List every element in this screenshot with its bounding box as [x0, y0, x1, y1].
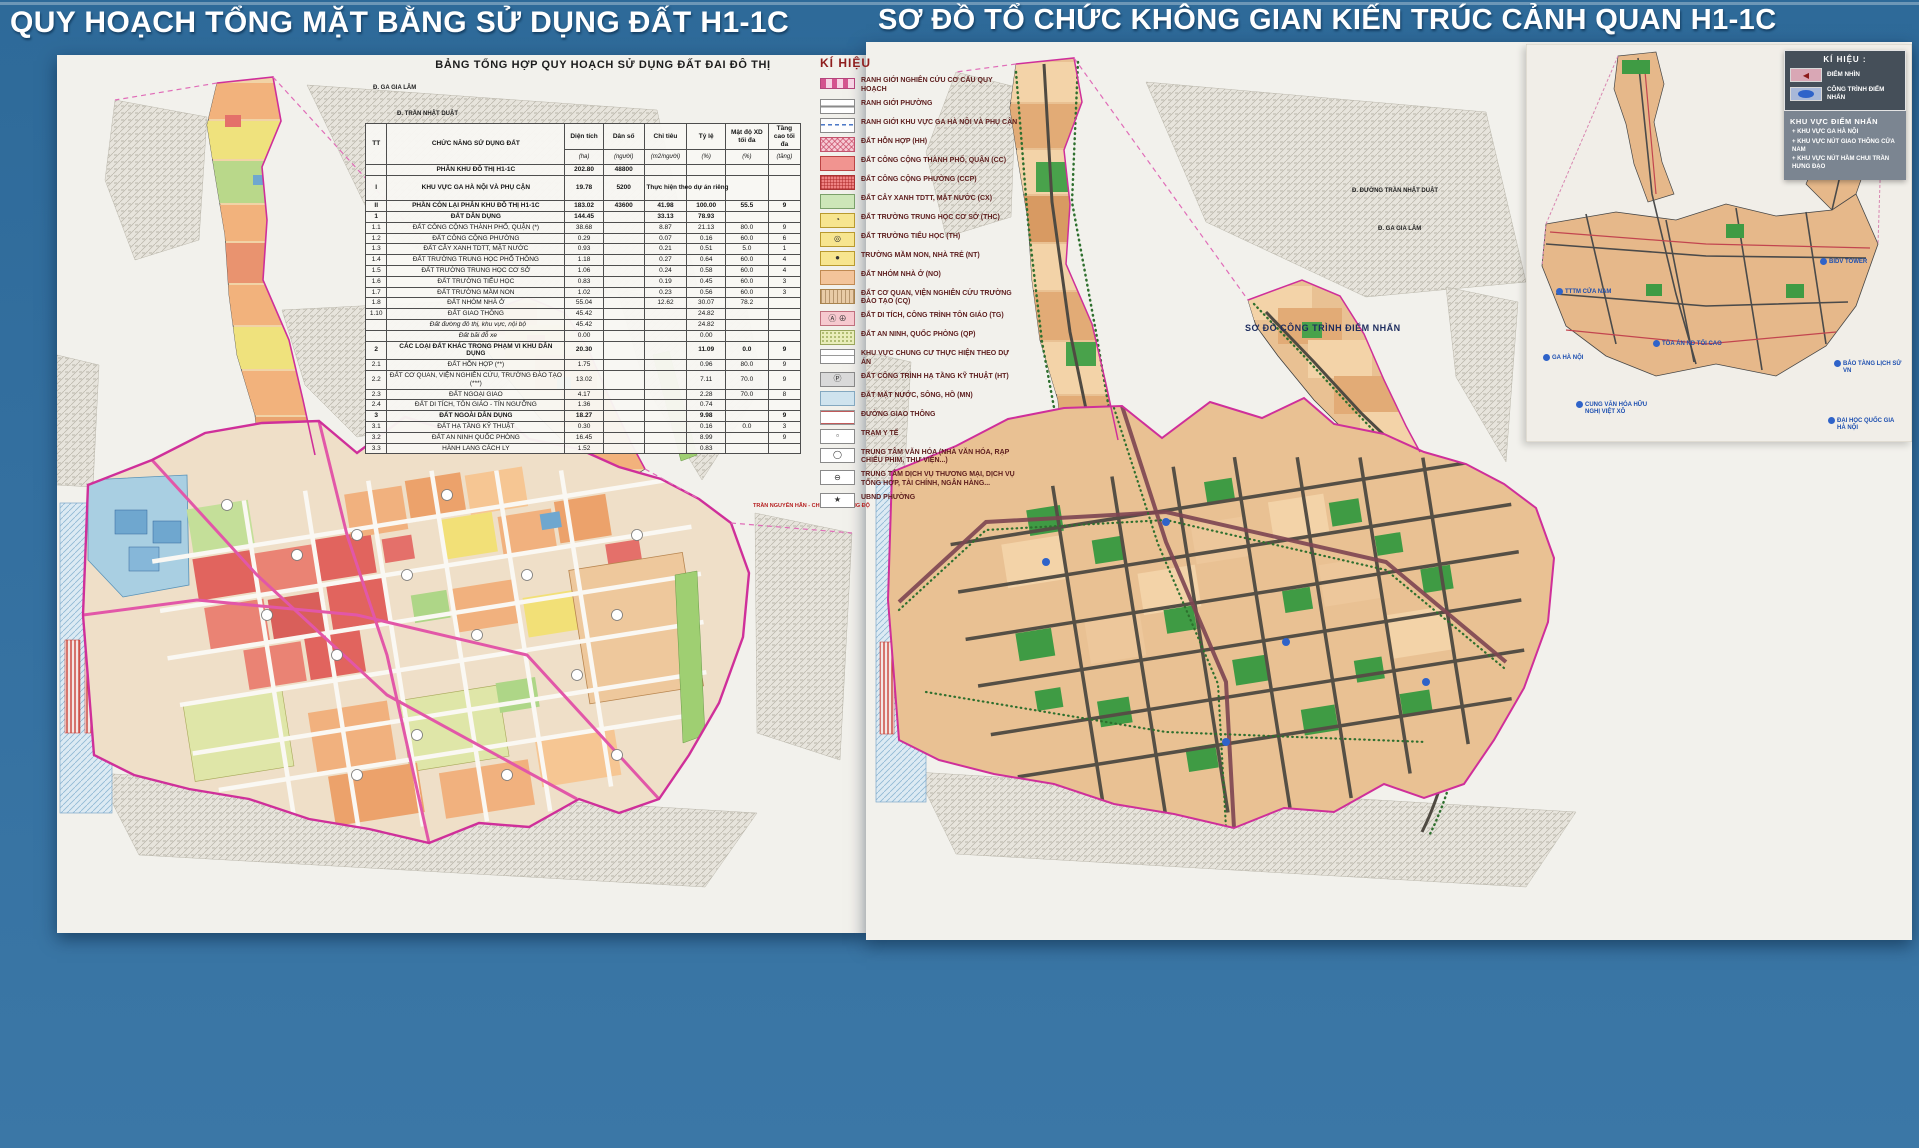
legend-label: ĐẤT MẶT NƯỚC, SÔNG, HỒ (MN)	[861, 391, 973, 401]
legend-swatch: ◯	[820, 448, 855, 463]
legend-item: ● TRƯỜNG MẦM NON, NHÀ TRẺ (NT)	[820, 251, 1020, 266]
cell-population: 5200	[603, 176, 644, 201]
cell-name: ĐẤT CÂY XANH TDTT, MẶT NƯỚC	[387, 244, 565, 255]
cell-population	[603, 255, 644, 266]
cell-area: 13.02	[565, 370, 604, 389]
cell-tt: 1.5	[366, 265, 387, 276]
inset-caption: SƠ ĐỒ CÔNG TRÌNH ĐIỂM NHẤN	[1245, 323, 1401, 333]
legend-label: ĐẤT CÔNG CỘNG THÀNH PHỐ, QUẬN (CC)	[861, 156, 1006, 166]
cell-ratio: 78.93	[687, 211, 726, 222]
legend-label: TRẠM Y TẾ	[861, 429, 898, 439]
col-unit: (ha)	[565, 150, 604, 165]
table-title: BẢNG TỔNG HỢP QUY HOẠCH SỬ DỤNG ĐẤT ĐAI …	[395, 59, 811, 71]
cell-population	[603, 244, 644, 255]
cell-floors	[768, 319, 800, 330]
cell-ratio: 21.13	[687, 222, 726, 233]
cell-floors	[768, 211, 800, 222]
cell-area: 1.36	[565, 400, 604, 411]
legend-item: ĐẤT CƠ QUAN, VIỆN NGHIÊN CỨU TRƯỜNG ĐÀO …	[820, 289, 1020, 308]
cell-quota	[644, 370, 687, 389]
cell-population	[603, 360, 644, 371]
cell-floors: 9	[768, 222, 800, 233]
table-row: 3.2 ĐẤT AN NINH QUỐC PHÒNG 16.45 8.99 9	[366, 432, 801, 443]
legend-label: ĐIỂM NHÌN	[1827, 71, 1860, 79]
legend-swatch	[820, 330, 855, 345]
cell-quota: 12.62	[644, 298, 687, 309]
legend-swatch	[820, 78, 855, 89]
cell-area: 20.30	[565, 341, 604, 360]
cell-name: ĐẤT NHÓM NHÀ Ở	[387, 298, 565, 309]
cell-density: 80.0	[725, 360, 768, 371]
legend-label: ĐẤT CÔNG TRÌNH HẠ TẦNG KỸ THUẬT (HT)	[861, 372, 1009, 382]
cell-ratio: 24.82	[687, 309, 726, 320]
legend-item: ĐẤT CÔNG CỘNG THÀNH PHỐ, QUẬN (CC)	[820, 156, 1020, 171]
cell-name: Đất đường đô thị, khu vực, nội bộ	[387, 319, 565, 330]
cell-area: 144.45	[565, 211, 604, 222]
cell-tt: 1.7	[366, 287, 387, 298]
cell-area: 0.93	[565, 244, 604, 255]
legend-item: ĐẤT MẶT NƯỚC, SÔNG, HỒ (MN)	[820, 391, 1020, 406]
cell-name: ĐẤT CÔNG CỘNG PHƯỜNG	[387, 233, 565, 244]
cell-name: ĐẤT AN NINH QUỐC PHÒNG	[387, 432, 565, 443]
legend-item: ▫ TRẠM Y TẾ	[820, 429, 1020, 444]
table-row: II PHẦN CÒN LẠI PHÂN KHU ĐÔ THỊ H1-1C 18…	[366, 201, 801, 212]
legend-label: ĐẤT TRƯỜNG TIỂU HỌC (TH)	[861, 232, 960, 242]
legend-label: TRUNG TÂM VĂN HÓA (NHÀ VĂN HÓA, RẠP CHIẾ…	[861, 448, 1020, 467]
table-row: 2.4 ĐẤT DI TÍCH, TÔN GIÁO - TÍN NGƯỠNG 1…	[366, 400, 801, 411]
right-legend-panel: KÍ HIỆU : ◀ ĐIỂM NHÌN CÔNG TRÌNH ĐIỂM NH…	[1784, 50, 1906, 180]
cell-quota	[644, 421, 687, 432]
cell-area: 45.42	[565, 309, 604, 320]
legend-label: ĐẤT NHÓM NHÀ Ở (NO)	[861, 270, 941, 280]
cell-area: 1.06	[565, 265, 604, 276]
cell-floors: 4	[768, 265, 800, 276]
cell-tt: 1.1	[366, 222, 387, 233]
cell-quota	[644, 411, 687, 422]
cell-density: 60.0	[725, 255, 768, 266]
cell-tt: 1.2	[366, 233, 387, 244]
table-row: 1 ĐẤT DÂN DỤNG 144.45 33.13 78.93	[366, 211, 801, 222]
cell-ratio: 24.82	[687, 319, 726, 330]
cell-tt: 3.2	[366, 432, 387, 443]
cell-population	[603, 222, 644, 233]
legend-swatch	[820, 270, 855, 285]
legend-label: ĐƯỜNG GIAO THÔNG	[861, 410, 935, 420]
cell-name: ĐẤT NGOẠI GIAO	[387, 389, 565, 400]
cell-name: ĐẤT HỖN HỢP (**)	[387, 360, 565, 371]
cell-name: ĐẤT TRƯỜNG TRUNG HỌC PHỔ THÔNG	[387, 255, 565, 266]
cell-population: 48800	[603, 165, 644, 176]
cell-quota	[644, 309, 687, 320]
legend-label: ĐẤT AN NINH, QUỐC PHÒNG (QP)	[861, 330, 975, 340]
legend-title: KÍ HIỆU :	[1790, 55, 1900, 64]
legend-item: ĐẤT CÂY XANH TDTT, MẶT NƯỚC (CX)	[820, 194, 1020, 209]
cell-density	[725, 443, 768, 454]
col-unit: (%)	[725, 150, 768, 165]
cell-floors	[768, 165, 800, 176]
cell-quota	[644, 165, 687, 176]
cell-name: Đất bãi đỗ xe	[387, 330, 565, 341]
table-row: 1.7 ĐẤT TRƯỜNG MẦM NON 1.02 0.23 0.56 60…	[366, 287, 801, 298]
col-unit: (m2/người)	[644, 150, 687, 165]
cell-tt: 2.4	[366, 400, 387, 411]
cell-floors: 3	[768, 421, 800, 432]
cell-ratio: 0.16	[687, 233, 726, 244]
table-row: Đất bãi đỗ xe 0.00 0.00	[366, 330, 801, 341]
cell-quota: 33.13	[644, 211, 687, 222]
cell-area: 1.18	[565, 255, 604, 266]
cell-name: ĐẤT NGOÀI DÂN DỤNG	[387, 411, 565, 422]
cell-population	[603, 330, 644, 341]
cell-floors	[768, 176, 800, 201]
cell-quota	[644, 330, 687, 341]
cell-ratio: 0.83	[687, 443, 726, 454]
cell-ratio: 7.11	[687, 370, 726, 389]
legend-label: TRUNG TÂM DỊCH VỤ THƯƠNG MẠI, DỊCH VỤ TỔ…	[861, 470, 1020, 489]
cell-ratio: 0.74	[687, 400, 726, 411]
cell-area: 38.68	[565, 222, 604, 233]
cell-area: 202.80	[565, 165, 604, 176]
cell-floors: 9	[768, 201, 800, 212]
cell-density: 55.5	[725, 201, 768, 212]
legend-swatch	[820, 118, 855, 133]
legend-label: RANH GIỚI PHƯỜNG	[861, 99, 932, 109]
cell-population	[603, 287, 644, 298]
cell-density: 60.0	[725, 276, 768, 287]
cell-tt: 1.4	[366, 255, 387, 266]
table-row: 2.1 ĐẤT HỖN HỢP (**) 1.75 0.96 80.0 9	[366, 360, 801, 371]
col-header: Chỉ tiêu	[644, 124, 687, 150]
cell-quota: 41.98	[644, 201, 687, 212]
cell-name: ĐẤT TRƯỜNG TRUNG HỌC CƠ SỞ	[387, 265, 565, 276]
cell-name: ĐẤT TRƯỜNG TIỂU HỌC	[387, 276, 565, 287]
legend-swatch: ◀	[1790, 68, 1822, 82]
legend-item: ◯ TRUNG TÂM VĂN HÓA (NHÀ VĂN HÓA, RẠP CH…	[820, 448, 1020, 467]
cell-area: 18.27	[565, 411, 604, 422]
legend-swatch	[820, 99, 855, 114]
legend-swatch: Ⓟ	[820, 372, 855, 387]
legend-swatch	[820, 410, 855, 425]
col-header-name: CHỨC NĂNG SỬ DỤNG ĐẤT	[387, 124, 565, 165]
table-row: PHÂN KHU ĐÔ THỊ H1-1C 202.80 48800	[366, 165, 801, 176]
legend-swatch	[820, 349, 855, 364]
cell-floors: 1	[768, 244, 800, 255]
cell-floors: 3	[768, 287, 800, 298]
landmark-dot-icon	[1828, 417, 1835, 424]
cell-floors: 6	[768, 233, 800, 244]
table-row: 2.3 ĐẤT NGOẠI GIAO 4.17 2.28 70.0 8	[366, 389, 801, 400]
legend-swatch: ●	[820, 251, 855, 266]
legend-item: ⊖ TRUNG TÂM DỊCH VỤ THƯƠNG MẠI, DỊCH VỤ …	[820, 470, 1020, 489]
cell-density: 70.0	[725, 370, 768, 389]
cell-ratio: 11.09	[687, 341, 726, 360]
legend-item: Ⓟ ĐẤT CÔNG TRÌNH HẠ TẦNG KỸ THUẬT (HT)	[820, 372, 1020, 387]
legend-swatch: ◔	[820, 213, 855, 228]
landmark-dot-icon	[1543, 354, 1550, 361]
cell-density: 78.2	[725, 298, 768, 309]
legend-item: CÔNG TRÌNH ĐIỂM NHẤN	[1790, 86, 1900, 101]
cell-name: PHÂN KHU ĐÔ THỊ H1-1C	[387, 165, 565, 176]
legend-swatch	[820, 391, 855, 406]
cell-density	[725, 411, 768, 422]
cell-tt: 2.1	[366, 360, 387, 371]
cell-population	[603, 421, 644, 432]
legend-label: UBND PHƯỜNG	[861, 493, 915, 503]
table-row: 2.2 ĐẤT CƠ QUAN, VIỆN NGHIÊN CỨU, TRƯỜNG…	[366, 370, 801, 389]
cell-tt	[366, 319, 387, 330]
cell-density	[725, 400, 768, 411]
cell-density	[725, 432, 768, 443]
legend-swatch	[1790, 87, 1822, 101]
cell-density	[725, 330, 768, 341]
table-row: 1.4 ĐẤT TRƯỜNG TRUNG HỌC PHỔ THÔNG 1.18 …	[366, 255, 801, 266]
focus-areas-title: KHU VỰC ĐIỂM NHẤN	[1790, 117, 1900, 126]
legend-item: RANH GIỚI NGHIÊN CỨU CƠ CẤU QUY HOẠCH	[820, 76, 1020, 95]
cell-floors	[768, 443, 800, 454]
cell-ratio: 0.16	[687, 421, 726, 432]
cell-density	[725, 176, 768, 201]
cell-tt: 2.3	[366, 389, 387, 400]
legend-label: ĐẤT TRƯỜNG TRUNG HỌC CƠ SỞ (THC)	[861, 213, 1000, 223]
cell-name: ĐẤT CÔNG CỘNG THÀNH PHỐ, QUẬN (*)	[387, 222, 565, 233]
cell-population	[603, 341, 644, 360]
legend-swatch	[820, 194, 855, 209]
cell-name: PHẦN CÒN LẠI PHÂN KHU ĐÔ THỊ H1-1C	[387, 201, 565, 212]
legend-item: ◎ ĐẤT TRƯỜNG TIỂU HỌC (TH)	[820, 232, 1020, 247]
cell-area: 0.29	[565, 233, 604, 244]
col-unit: (%)	[687, 150, 726, 165]
col-header: Tầng cao tối đa	[768, 124, 800, 150]
table-row: 2 CÁC LOẠI ĐẤT KHÁC TRONG PHẠM VI KHU DÂ…	[366, 341, 801, 360]
legend-item: ★ UBND PHƯỜNG	[820, 493, 1020, 508]
cell-population	[603, 265, 644, 276]
cell-quota	[644, 400, 687, 411]
legend-label: ĐẤT CƠ QUAN, VIỆN NGHIÊN CỨU TRƯỜNG ĐÀO …	[861, 289, 1020, 308]
cell-floors: 9	[768, 432, 800, 443]
cell-quota	[644, 360, 687, 371]
cell-population	[603, 211, 644, 222]
col-unit: (người)	[603, 150, 644, 165]
cell-floors	[768, 330, 800, 341]
col-header: Dân số	[603, 124, 644, 150]
cell-tt: 3.3	[366, 443, 387, 454]
legend-swatch: Ⓐ ⊕	[820, 311, 855, 326]
legend-swatch	[820, 156, 855, 171]
symbol-legend-box: KÍ HIỆU : ◀ ĐIỂM NHÌN CÔNG TRÌNH ĐIỂM NH…	[1784, 50, 1906, 111]
legend-item: ĐƯỜNG GIAO THÔNG	[820, 410, 1020, 425]
landmark-label: CUNG VĂN HÓA HỮU NGHỊ VIỆT XÔ	[1576, 402, 1648, 416]
table-row: 1.5 ĐẤT TRƯỜNG TRUNG HỌC CƠ SỞ 1.06 0.24…	[366, 265, 801, 276]
legend-label: RANH GIỚI NGHIÊN CỨU CƠ CẤU QUY HOẠCH	[861, 76, 1020, 95]
legend-item: KHU VỰC CHUNG CƯ THỰC HIỆN THEO DỰ ÁN	[820, 349, 1020, 368]
cell-tt: 2.2	[366, 370, 387, 389]
legend-item: ĐẤT CÔNG CỘNG PHƯỜNG (CCP)	[820, 175, 1020, 190]
cell-tt: 3.1	[366, 421, 387, 432]
cell-floors	[768, 298, 800, 309]
cell-density: 60.0	[725, 265, 768, 276]
cell-ratio	[687, 165, 726, 176]
legend-item: ◔ ĐẤT TRƯỜNG TRUNG HỌC CƠ SỞ (THC)	[820, 213, 1020, 228]
cell-population	[603, 443, 644, 454]
cell-area: 19.78	[565, 176, 604, 201]
cell-tt: II	[366, 201, 387, 212]
cell-name: ĐẤT DI TÍCH, TÔN GIÁO - TÍN NGƯỠNG	[387, 400, 565, 411]
cell-quota	[644, 319, 687, 330]
cell-name: ĐẤT CƠ QUAN, VIỆN NGHIÊN CỨU, TRƯỜNG ĐÀO…	[387, 370, 565, 389]
legend-item: ĐẤT HỖN HỢP (HH)	[820, 137, 1020, 152]
col-header: Tỷ lệ	[687, 124, 726, 150]
legend-label: KHU VỰC CHUNG CƯ THỰC HIỆN THEO DỰ ÁN	[861, 349, 1020, 368]
col-header: Mật độ XD tối đa	[725, 124, 768, 150]
cell-population	[603, 233, 644, 244]
landmark-dot-icon	[1653, 340, 1660, 347]
table-row: 1.3 ĐẤT CÂY XANH TDTT, MẶT NƯỚC 0.93 0.2…	[366, 244, 801, 255]
legend-item: Ⓐ ⊕ ĐẤT DI TÍCH, CÔNG TRÌNH TÔN GIÁO (TG…	[820, 311, 1020, 326]
cell-density: 0.0	[725, 341, 768, 360]
legend-label: ĐẤT HỖN HỢP (HH)	[861, 137, 927, 147]
table-row: 1.10 ĐẤT GIAO THÔNG 45.42 24.82	[366, 309, 801, 320]
cell-floors: 9	[768, 360, 800, 371]
cell-ratio: 0.64	[687, 255, 726, 266]
left-legend: KÍ HIỆU RANH GIỚI NGHIÊN CỨU CƠ CẤU QUY …	[820, 56, 1020, 512]
legend-title: KÍ HIỆU	[820, 56, 1020, 70]
cell-name: CÁC LOẠI ĐẤT KHÁC TRONG PHẠM VI KHU DÂN …	[387, 341, 565, 360]
cell-floors	[768, 400, 800, 411]
cell-floors	[768, 309, 800, 320]
cell-floors: 9	[768, 411, 800, 422]
cell-ratio: 0.00	[687, 330, 726, 341]
landmark-dot-icon	[1820, 258, 1827, 265]
landmark-label: BẢO TÀNG LỊCH SỬ VN	[1834, 361, 1906, 375]
cell-tt: 1.8	[366, 298, 387, 309]
cell-tt: I	[366, 176, 387, 201]
legend-swatch: ▫	[820, 429, 855, 444]
landmark-dot-icon	[1576, 401, 1583, 408]
cell-density: 0.0	[725, 421, 768, 432]
cell-population	[603, 411, 644, 422]
landmark-label: ĐẠI HỌC QUỐC GIA HÀ NỘI	[1828, 418, 1900, 432]
cell-ratio: 8.99	[687, 432, 726, 443]
cell-area: 1.52	[565, 443, 604, 454]
cell-quota: 0.24	[644, 265, 687, 276]
table-row: 1.1 ĐẤT CÔNG CỘNG THÀNH PHỐ, QUẬN (*) 38…	[366, 222, 801, 233]
legend-label: CÔNG TRÌNH ĐIỂM NHẤN	[1827, 86, 1900, 101]
legend-item: ◀ ĐIỂM NHÌN	[1790, 68, 1900, 82]
col-unit: (tầng)	[768, 150, 800, 165]
table-row: I KHU VỰC GA HÀ NỘI VÀ PHỤ CẬN 19.78 520…	[366, 176, 801, 201]
cell-floors: 9	[768, 370, 800, 389]
cell-area: 0.00	[565, 330, 604, 341]
legend-item: RANH GIỚI KHU VỰC GA HÀ NỘI VÀ PHỤ CẬN	[820, 118, 1020, 133]
legend-swatch: ◎	[820, 232, 855, 247]
cell-area: 1.75	[565, 360, 604, 371]
cell-density	[725, 165, 768, 176]
landmark-label: BIDV TOWER	[1820, 259, 1867, 266]
legend-item: ĐẤT NHÓM NHÀ Ở (NO)	[820, 270, 1020, 285]
cell-density: 60.0	[725, 287, 768, 298]
legend-item: ĐẤT AN NINH, QUỐC PHÒNG (QP)	[820, 330, 1020, 345]
cell-population	[603, 276, 644, 287]
cell-population	[603, 370, 644, 389]
cell-tt: 1.3	[366, 244, 387, 255]
cell-name: KHU VỰC GA HÀ NỘI VÀ PHỤ CẬN	[387, 176, 565, 201]
legend-label: ĐẤT CÂY XANH TDTT, MẶT NƯỚC (CX)	[861, 194, 992, 204]
landmark-label: GA HÀ NỘI	[1543, 355, 1583, 362]
cell-population	[603, 319, 644, 330]
legend-swatch	[820, 137, 855, 152]
landmark-dot-icon	[1834, 360, 1841, 367]
legend-item: RANH GIỚI PHƯỜNG	[820, 99, 1020, 114]
legend-swatch	[820, 175, 855, 190]
street-label: Đ. GA GIA LÂM	[1378, 226, 1421, 232]
cell-tt: 1	[366, 211, 387, 222]
cell-name: ĐẤT DÂN DỤNG	[387, 211, 565, 222]
cell-ratio: 0.45	[687, 276, 726, 287]
cell-tt: 3	[366, 411, 387, 422]
landmark-dot-icon	[1556, 288, 1563, 295]
cell-ratio: 0.58	[687, 265, 726, 276]
col-header-tt: TT	[366, 124, 387, 165]
street-label: Đ. ĐƯỜNG TRẦN NHẬT DUẬT	[1352, 188, 1438, 194]
cell-quota	[644, 389, 687, 400]
focus-area-item: KHU VỰC NÚT GIAO THÔNG CỬA NAM	[1792, 139, 1900, 155]
cell-area: 55.04	[565, 298, 604, 309]
cell-density	[725, 309, 768, 320]
cell-name: HÀNH LANG CÁCH LY	[387, 443, 565, 454]
focus-area-item: KHU VỰC GA HÀ NỘI	[1792, 129, 1900, 137]
cell-tt	[366, 330, 387, 341]
cell-ratio: 0.96	[687, 360, 726, 371]
cell-tt: 1.6	[366, 276, 387, 287]
left-poster-title: QUY HOẠCH TỔNG MẶT BẰNG SỬ DỤNG ĐẤT H1-1…	[10, 6, 789, 40]
cell-area: 4.17	[565, 389, 604, 400]
cell-quota: 0.27	[644, 255, 687, 266]
cell-quota: 8.87	[644, 222, 687, 233]
landmark-label: TÒA ÁN ND TỐI CAO	[1653, 341, 1722, 348]
legend-swatch: ⊖	[820, 470, 855, 485]
cell-ratio: 30.07	[687, 298, 726, 309]
table-row: 3 ĐẤT NGOÀI DÂN DỤNG 18.27 9.98 9	[366, 411, 801, 422]
legend-label: ĐẤT DI TÍCH, CÔNG TRÌNH TÔN GIÁO (TG)	[861, 311, 1004, 321]
cell-tt: 2	[366, 341, 387, 360]
cell-tt: 1.10	[366, 309, 387, 320]
cell-population	[603, 400, 644, 411]
right-poster-title: SƠ ĐỒ TỔ CHỨC KHÔNG GIAN KIẾN TRÚC CẢNH …	[878, 4, 1777, 37]
cell-name: ĐẤT HẠ TẦNG KỸ THUẬT	[387, 421, 565, 432]
cell-quota: 0.23	[644, 287, 687, 298]
cell-area: 45.42	[565, 319, 604, 330]
cell-ratio: 0.56	[687, 287, 726, 298]
cell-area: 0.83	[565, 276, 604, 287]
legend-label: RANH GIỚI KHU VỰC GA HÀ NỘI VÀ PHỤ CẬN	[861, 118, 1017, 128]
cell-ratio: 100.00	[687, 201, 726, 212]
cell-floors: 3	[768, 276, 800, 287]
table-row: Đất đường đô thị, khu vực, nội bộ 45.42 …	[366, 319, 801, 330]
cell-quota	[644, 432, 687, 443]
right-poster: TTTM CỬA NAM GA HÀ NỘI TÒA ÁN ND TỐI CAO…	[866, 42, 1912, 940]
cell-quota: 0.19	[644, 276, 687, 287]
cell-ratio: 2.28	[687, 389, 726, 400]
focus-area-item: KHU VỰC NÚT HẦM CHUI TRẦN HƯNG ĐẠO	[1792, 156, 1900, 172]
cell-area: 16.45	[565, 432, 604, 443]
cell-density: 70.0	[725, 389, 768, 400]
cell-population	[603, 309, 644, 320]
cell-ratio: 9.98	[687, 411, 726, 422]
table-row: 3.3 HÀNH LANG CÁCH LY 1.52 0.83	[366, 443, 801, 454]
planning-posters-photo: { "left_panel": { "title": "QUY HOẠCH TỔ…	[0, 0, 1919, 1148]
cell-quota: 0.21	[644, 244, 687, 255]
cell-quota	[644, 341, 687, 360]
